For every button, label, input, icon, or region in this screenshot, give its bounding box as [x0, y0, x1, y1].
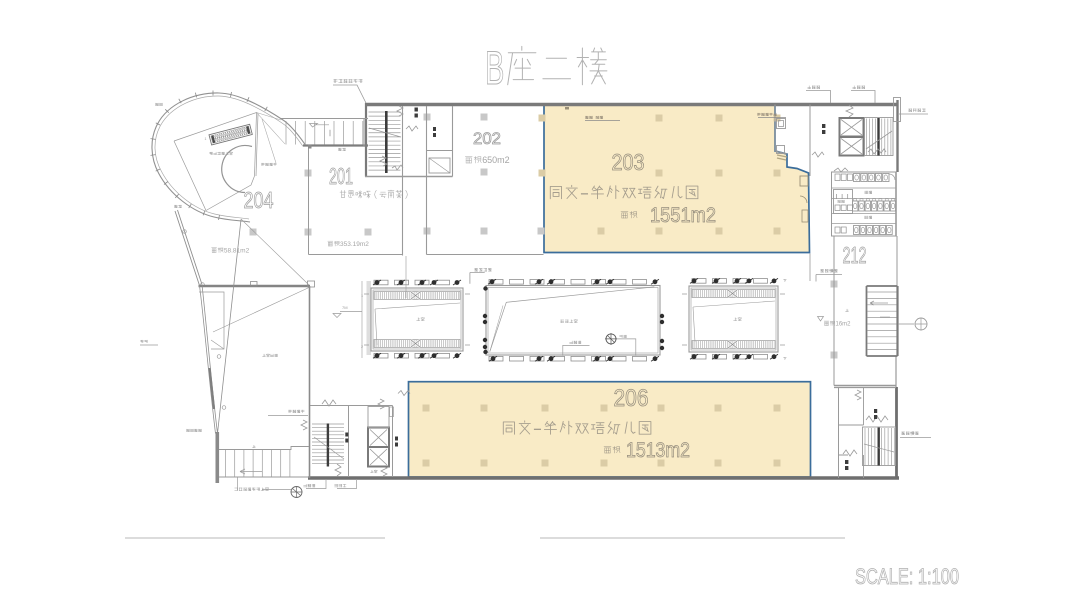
svg-text:203: 203: [612, 149, 645, 175]
svg-text:-: -: [580, 185, 590, 203]
svg-text:202: 202: [473, 129, 501, 148]
svg-text:212: 212: [843, 242, 867, 268]
svg-text:SCALE: 1:100: SCALE: 1:100: [855, 564, 959, 589]
svg-text:58.81m2: 58.81m2: [224, 248, 250, 255]
svg-text:7M: 7M: [342, 305, 348, 310]
svg-text:1513m2: 1513m2: [626, 439, 690, 462]
svg-text:B: B: [485, 41, 504, 94]
svg-text:204: 204: [244, 187, 274, 213]
svg-text:1551m2: 1551m2: [650, 204, 716, 227]
svg-text:-: -: [533, 420, 543, 438]
svg-text:201: 201: [329, 163, 353, 189]
svg-text:1: 1: [205, 137, 207, 141]
svg-text:16m2: 16m2: [836, 322, 852, 328]
svg-text:353.19m2: 353.19m2: [340, 241, 369, 248]
svg-text:206: 206: [614, 385, 649, 412]
svg-text:650m2: 650m2: [482, 155, 510, 165]
